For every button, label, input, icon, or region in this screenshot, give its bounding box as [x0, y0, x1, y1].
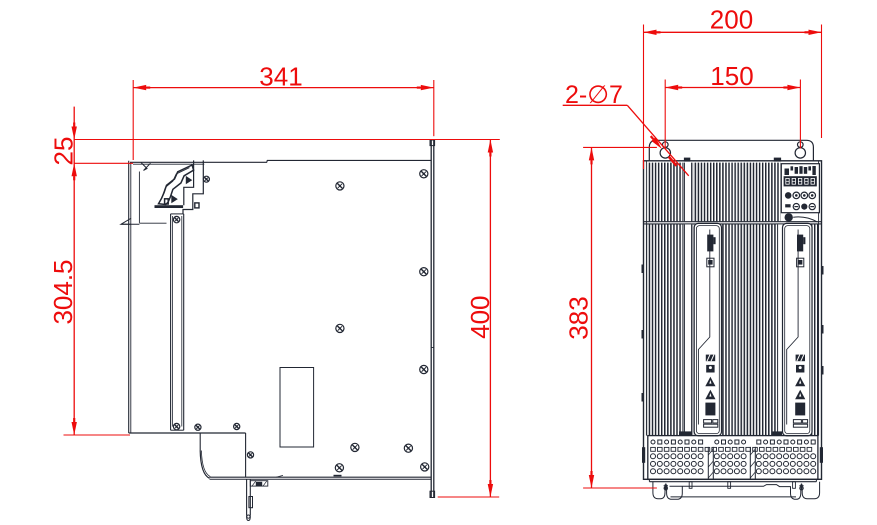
svg-text:150: 150	[710, 61, 753, 91]
svg-text:200: 200	[710, 5, 753, 35]
svg-text:383: 383	[563, 296, 593, 339]
svg-text:304.5: 304.5	[48, 259, 78, 324]
